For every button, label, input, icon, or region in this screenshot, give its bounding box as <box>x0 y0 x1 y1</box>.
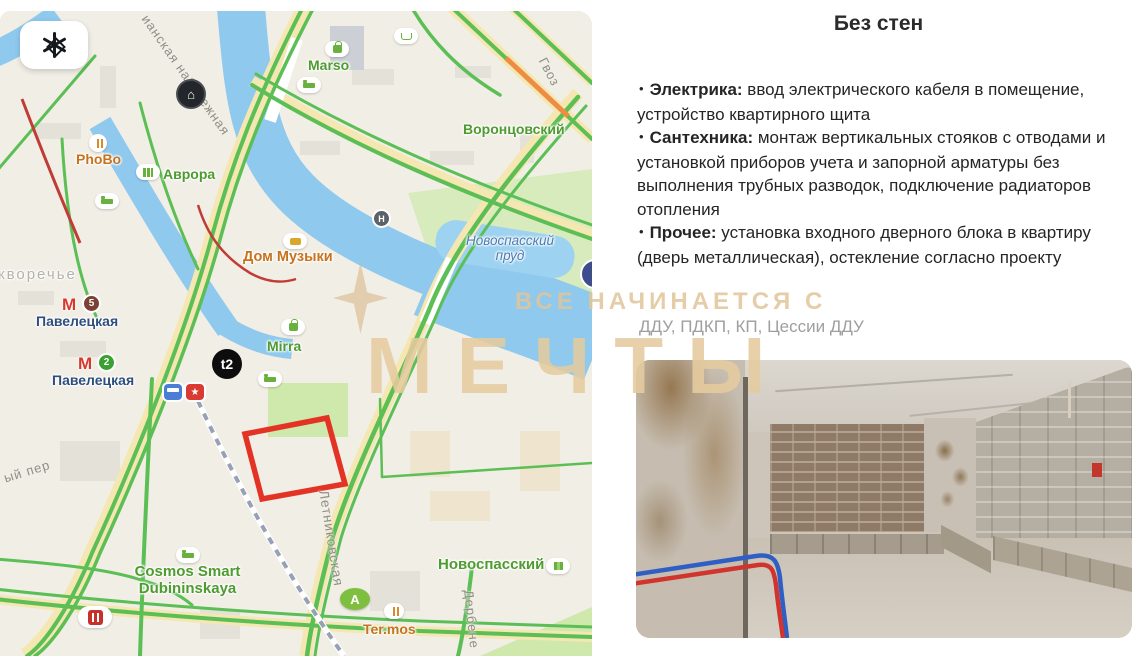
star-icon: ★ <box>191 387 200 398</box>
star-poi-icon[interactable]: ★ <box>186 384 204 400</box>
theater-poi[interactable] <box>78 606 112 628</box>
label-zamoskvorechye: кворечье <box>0 266 77 283</box>
bullet-term: Электрика: <box>650 80 743 99</box>
helipad-marker[interactable]: Н <box>374 211 389 226</box>
label-dom-muzyki: Дом Музыки <box>243 249 333 265</box>
bullet-marker: • <box>637 129 650 144</box>
business-poi-novospassky[interactable] <box>546 558 570 574</box>
shop-poi[interactable] <box>325 41 349 57</box>
apartment-photo <box>636 360 1132 638</box>
bed-icon <box>264 377 276 382</box>
label-phobo: PhoBo <box>76 151 121 167</box>
label-mirra: Mirra <box>267 338 301 354</box>
bullet-marker: • <box>637 81 650 96</box>
bed-icon <box>303 83 315 88</box>
photo-floor-pipes <box>636 360 1132 638</box>
label-novospassky-prud-line2: пруд <box>455 248 565 263</box>
bullet-term: Сантехника: <box>650 128 754 147</box>
label-novospassky-prud-line1: Новоспасский <box>455 233 565 248</box>
map-panel[interactable]: ианская набережная Гвоз Летниковская Дер… <box>0 11 592 656</box>
store-poi[interactable] <box>394 28 418 44</box>
house-icon: ⌂ <box>187 87 195 102</box>
label-novospassky-prud: Новоспасский пруд <box>455 233 565 263</box>
bullet-marker: • <box>637 224 650 239</box>
list-item: •Электрика: ввод электрического кабеля в… <box>637 78 1123 126</box>
theatre-poi-dom-muzyki[interactable] <box>283 233 307 249</box>
fork-knife-icon <box>393 607 395 616</box>
metro-label-paveletskaya-2: Павелецкая <box>52 372 134 388</box>
bar-chart-icon <box>143 168 153 177</box>
business-poi-avrora[interactable] <box>136 164 160 180</box>
metro-icon-line2[interactable]: М <box>78 354 92 374</box>
contract-types: ДДУ, ПДКП, КП, Цессии ДДУ <box>639 317 864 337</box>
label-termos: Ter.mos <box>363 621 416 637</box>
metro-icon-line5[interactable]: М <box>62 295 76 315</box>
t2-label: t2 <box>221 356 233 372</box>
aeroexpress-icon: A <box>350 592 359 607</box>
label-cosmos-line1: Cosmos Smart <box>130 563 245 580</box>
label-marso: Marso <box>308 57 349 73</box>
hotel-poi-2[interactable] <box>95 193 119 209</box>
metro-label-paveletskaya-5: Павелецкая <box>36 313 118 329</box>
theater-icon <box>88 610 103 625</box>
fork-knife-icon <box>97 139 99 148</box>
metro-line2-badge[interactable]: 2 <box>99 355 114 370</box>
list-item: •Прочее: установка входного дверного бло… <box>637 221 1123 269</box>
label-novospassky-bc: Новоспасский <box>438 556 544 573</box>
snowflake-button[interactable] <box>20 21 88 69</box>
bed-icon <box>101 199 113 204</box>
hotel-poi-3[interactable] <box>258 371 282 387</box>
metro-line5-badge[interactable]: 5 <box>84 296 99 311</box>
bed-icon <box>182 553 194 558</box>
house-poi-marker[interactable]: ⌂ <box>176 79 206 109</box>
bus-stop-icon[interactable] <box>164 384 182 400</box>
theater-masks-icon <box>290 238 301 245</box>
snowflake-icon <box>41 32 67 58</box>
label-cosmos: Cosmos Smart Dubininskaya <box>130 563 245 597</box>
hotel-poi-cosmos[interactable] <box>176 547 200 563</box>
helipad-icon: Н <box>378 214 385 224</box>
shopping-bag-icon <box>289 323 298 331</box>
shopping-bag-icon <box>333 45 342 53</box>
label-vorontsovsky: Воронцовский <box>463 121 565 137</box>
label-avrora: Аврора <box>163 166 215 182</box>
bullet-term: Прочее: <box>650 223 717 242</box>
restaurant-poi-termos[interactable] <box>384 603 404 619</box>
label-cosmos-line2: Dubininskaya <box>130 580 245 597</box>
works-list: •Электрика: ввод электрического кабеля в… <box>637 78 1123 269</box>
list-item: •Сантехника: монтаж вертикальных стояков… <box>637 126 1123 221</box>
aeroexpress-marker[interactable]: A <box>340 588 370 610</box>
t2-logo-marker[interactable]: t2 <box>212 349 242 379</box>
hotel-poi[interactable] <box>297 77 321 93</box>
page-title: Без стен <box>620 12 1137 36</box>
building-icon <box>554 562 563 570</box>
traffic-orange <box>506 58 568 116</box>
cart-icon <box>401 33 412 40</box>
info-panel: Без стен •Электрика: ввод электрического… <box>620 0 1137 656</box>
restaurant-poi-phobo[interactable] <box>89 134 107 152</box>
shop-poi-mirra[interactable] <box>281 319 305 335</box>
